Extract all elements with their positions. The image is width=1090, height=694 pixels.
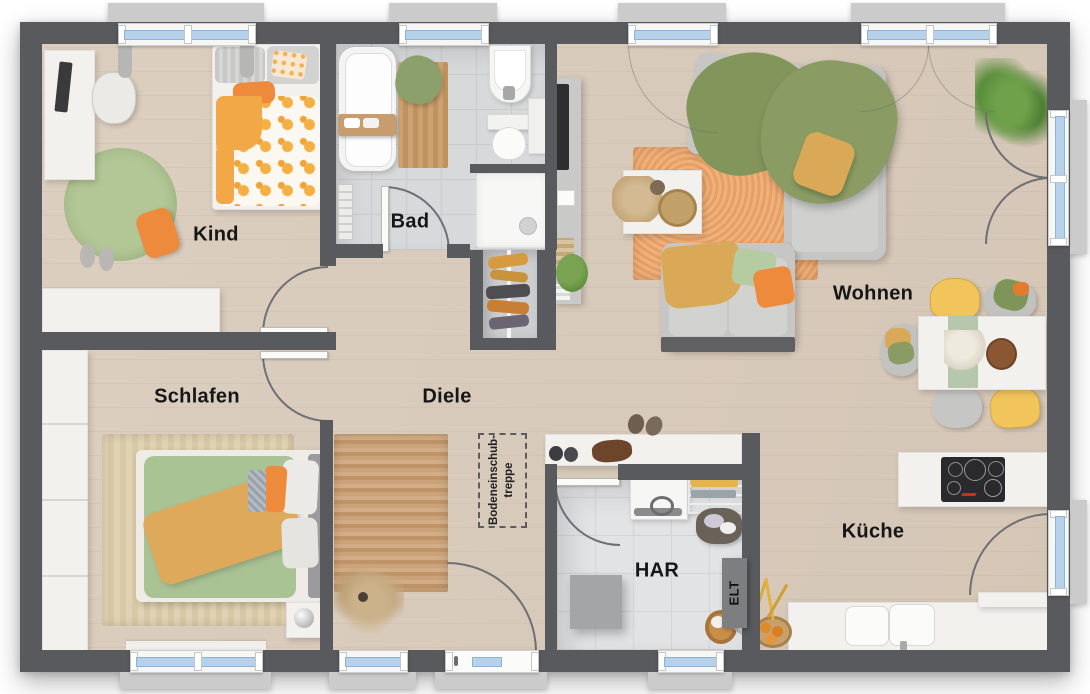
cooktop-indicator bbox=[961, 493, 976, 496]
entry-door-handle bbox=[454, 656, 458, 666]
washing-machine-drum-ring bbox=[650, 496, 674, 516]
shower-drain bbox=[519, 217, 537, 235]
loft-hatch-label: Bodeneinschub- treppe bbox=[487, 435, 517, 525]
entry-stoop bbox=[435, 672, 547, 689]
sill-top-2 bbox=[389, 3, 497, 23]
window-wohnen-1 bbox=[628, 23, 718, 46]
kitchen-sink-right bbox=[889, 604, 935, 646]
wall-bad-bottom-left bbox=[336, 244, 383, 258]
burner-1 bbox=[948, 462, 963, 477]
sofa-bottom-orange-pillow bbox=[752, 265, 796, 309]
schlafen-pillow-white-1 bbox=[281, 459, 320, 515]
coffee-table-vase bbox=[650, 180, 665, 195]
wall-kind-bad bbox=[320, 44, 336, 266]
schlafen-window-interior-sill bbox=[126, 641, 266, 650]
room-label-har: HAR bbox=[635, 560, 679, 583]
sill-bottom-1 bbox=[120, 672, 271, 689]
window-diele bbox=[339, 650, 408, 673]
shower-partition-wall bbox=[470, 164, 548, 173]
diele-dried-plant bbox=[334, 562, 404, 634]
har-storage-box bbox=[570, 575, 622, 629]
terrace-door-kueche bbox=[1048, 510, 1069, 596]
shelf-item-white bbox=[557, 190, 575, 206]
sill-bottom-2 bbox=[329, 672, 416, 689]
room-label-schlafen: Schlafen bbox=[154, 386, 240, 409]
wall-exterior-left bbox=[20, 22, 42, 672]
wall-shoe-closet-bottom bbox=[470, 338, 556, 350]
sill-bottom-3 bbox=[648, 672, 732, 689]
wall-schlafen-diele bbox=[320, 420, 333, 650]
coffee-table-tray bbox=[658, 189, 697, 227]
room-label-kueche: Küche bbox=[842, 521, 905, 544]
door-leaf-schlafen bbox=[260, 351, 328, 359]
caddy-towel-roll-2 bbox=[363, 118, 379, 128]
window-bad bbox=[399, 23, 489, 46]
chair-cloth-orange bbox=[1013, 282, 1029, 296]
loft-hatch-label-line2: treppe bbox=[502, 435, 517, 525]
caddy-towel-roll-1 bbox=[344, 118, 360, 128]
loft-hatch-label-line1: Bodeneinschub- bbox=[487, 435, 502, 525]
bench-shoe-a bbox=[549, 446, 563, 461]
schlafen-pillow-white-2 bbox=[281, 517, 319, 568]
sill-top-3 bbox=[618, 3, 726, 23]
nightstand-lamp bbox=[294, 608, 314, 628]
kind-sideboard bbox=[42, 288, 220, 335]
window-kind bbox=[118, 23, 256, 46]
bath-radiator bbox=[338, 184, 353, 240]
burner-3 bbox=[988, 461, 1004, 477]
window-wohnen-2 bbox=[861, 23, 997, 46]
sill-top-1 bbox=[108, 3, 264, 23]
dining-table-bowl bbox=[986, 338, 1017, 370]
french-door-wohnen bbox=[1048, 110, 1069, 246]
kind-desk-chair bbox=[92, 72, 136, 124]
window-har bbox=[658, 650, 724, 673]
wall-bad-bottom-right bbox=[447, 244, 470, 258]
sill-right-2 bbox=[1070, 500, 1087, 604]
shower-tray bbox=[476, 173, 549, 248]
burner-4 bbox=[947, 481, 961, 495]
kind-curtain-right bbox=[240, 44, 254, 78]
toilet-bowl bbox=[492, 127, 526, 160]
schlafen-pillow-orange bbox=[262, 465, 287, 512]
schlafen-wardrobe bbox=[42, 350, 88, 652]
room-label-kind: Kind bbox=[193, 224, 239, 247]
laundry-clothes-2 bbox=[720, 522, 736, 534]
electrical-panel-label: ELT bbox=[727, 580, 742, 605]
door-leaf-har bbox=[554, 478, 620, 486]
shelf-plant bbox=[556, 254, 588, 292]
kind-bed-pillow-dotted bbox=[270, 50, 307, 80]
kind-slipper-right bbox=[99, 247, 114, 271]
bath-shelf bbox=[528, 98, 546, 154]
burner-2 bbox=[964, 459, 986, 481]
kind-bed-duvet-edge bbox=[216, 146, 234, 204]
bath-sink-faucet bbox=[503, 86, 515, 100]
wall-har-left bbox=[545, 464, 557, 650]
room-label-diele: Diele bbox=[422, 386, 471, 409]
dining-table-flowers bbox=[944, 330, 988, 370]
diele-plant-pot bbox=[358, 592, 368, 602]
dining-chair-gray-bottom bbox=[932, 386, 982, 428]
kind-bed-duvet-fold bbox=[216, 96, 262, 150]
kind-curtain-left bbox=[118, 44, 132, 78]
entry-door bbox=[445, 650, 539, 673]
kind-slipper-left bbox=[80, 244, 95, 268]
tv-screen bbox=[556, 84, 569, 170]
fruit-1 bbox=[760, 622, 771, 633]
sofa-bottom-back-rail bbox=[661, 337, 795, 352]
wall-shoe-closet-left bbox=[470, 250, 483, 350]
bathtub-basin bbox=[345, 53, 392, 167]
dining-chair-yellow-bottom bbox=[989, 384, 1042, 429]
kitchen-sink-left bbox=[845, 606, 889, 646]
wall-har-top bbox=[618, 464, 760, 480]
drying-rack-clothes-gray bbox=[691, 490, 736, 498]
room-label-bad: Bad bbox=[391, 211, 430, 234]
burner-5 bbox=[984, 479, 1002, 497]
wall-bad-wohnen bbox=[545, 44, 557, 250]
window-schlafen bbox=[130, 650, 263, 673]
room-label-wohnen: Wohnen bbox=[833, 283, 913, 306]
door-leaf-bad bbox=[381, 186, 389, 252]
floor-plan-canvas: Bodeneinschub- treppe ELT bbox=[0, 0, 1090, 694]
wall-kind-schlafen bbox=[42, 332, 336, 350]
fruit-3 bbox=[766, 634, 776, 644]
dining-chair-yellow-top bbox=[930, 278, 980, 320]
bench-shoe-b bbox=[564, 447, 578, 462]
sill-right-1 bbox=[1070, 100, 1087, 254]
sill-top-4 bbox=[851, 3, 1005, 23]
schlafen-pillow-check bbox=[248, 470, 266, 512]
wall-shoe-closet-right bbox=[537, 250, 556, 350]
